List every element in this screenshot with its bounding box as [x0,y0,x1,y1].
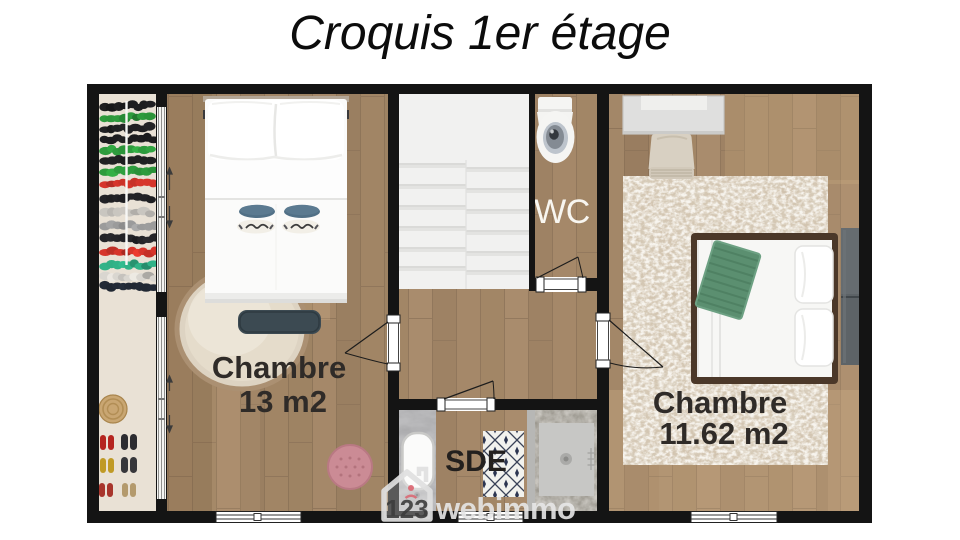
svg-text:WC: WC [534,193,590,231]
svg-text:Chambre: Chambre [212,350,346,385]
svg-text:13 m2: 13 m2 [239,384,327,419]
svg-text:11.62 m2: 11.62 m2 [659,416,788,451]
svg-text:Chambre: Chambre [653,385,787,420]
svg-text:SDE: SDE [445,445,507,478]
svg-text:webimmo: webimmo [435,491,575,526]
svg-text:Croquis 1er étage: Croquis 1er étage [289,7,671,60]
svg-text:123: 123 [385,494,428,524]
